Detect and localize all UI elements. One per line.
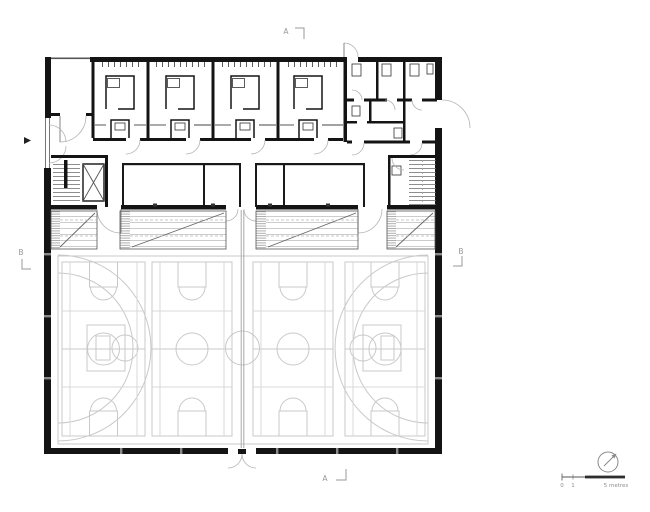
south-double-door <box>228 449 256 468</box>
floor-plan-drawing: A A B B 0 <box>0 0 650 512</box>
stair-lift-left <box>51 155 108 207</box>
court-markings <box>58 210 428 448</box>
section-marker-a-bottom: A <box>322 469 346 483</box>
scale-one-label: 1 <box>571 483 575 489</box>
cross-court <box>152 262 232 436</box>
changing-rooms <box>92 57 348 154</box>
stair-right <box>388 155 437 207</box>
centre-partition <box>241 210 244 448</box>
coat-hook-ticks <box>98 62 338 67</box>
storage-rooms <box>122 163 365 207</box>
section-label: B <box>18 248 23 257</box>
changing-room-door-arcs <box>126 140 328 154</box>
section-marker-b-right: B <box>453 247 464 266</box>
section-marker-b-left: B <box>18 248 31 269</box>
north-arrow-icon <box>598 452 618 472</box>
hall-north-wall <box>44 204 442 234</box>
bleacher-section <box>256 211 358 249</box>
bleacher-section <box>387 211 435 249</box>
scale-end-label: 5 metres <box>604 483 629 489</box>
scale-zero-label: 0 <box>560 483 564 489</box>
annotations: A A B B 0 <box>18 27 628 489</box>
section-label: A <box>322 474 328 483</box>
entrance-arrow-icon <box>24 137 31 144</box>
bleacher-section <box>120 211 226 249</box>
bleacher-section <box>51 211 97 249</box>
section-label: A <box>283 27 289 36</box>
scale-bar: 0 1 5 metres <box>560 474 628 490</box>
stair-treads <box>409 160 436 205</box>
floor-plan-sheet: A A B B 0 <box>0 0 650 512</box>
cross-court <box>253 262 333 436</box>
section-label: B <box>458 247 463 256</box>
section-marker-a-top: A <box>283 27 304 39</box>
